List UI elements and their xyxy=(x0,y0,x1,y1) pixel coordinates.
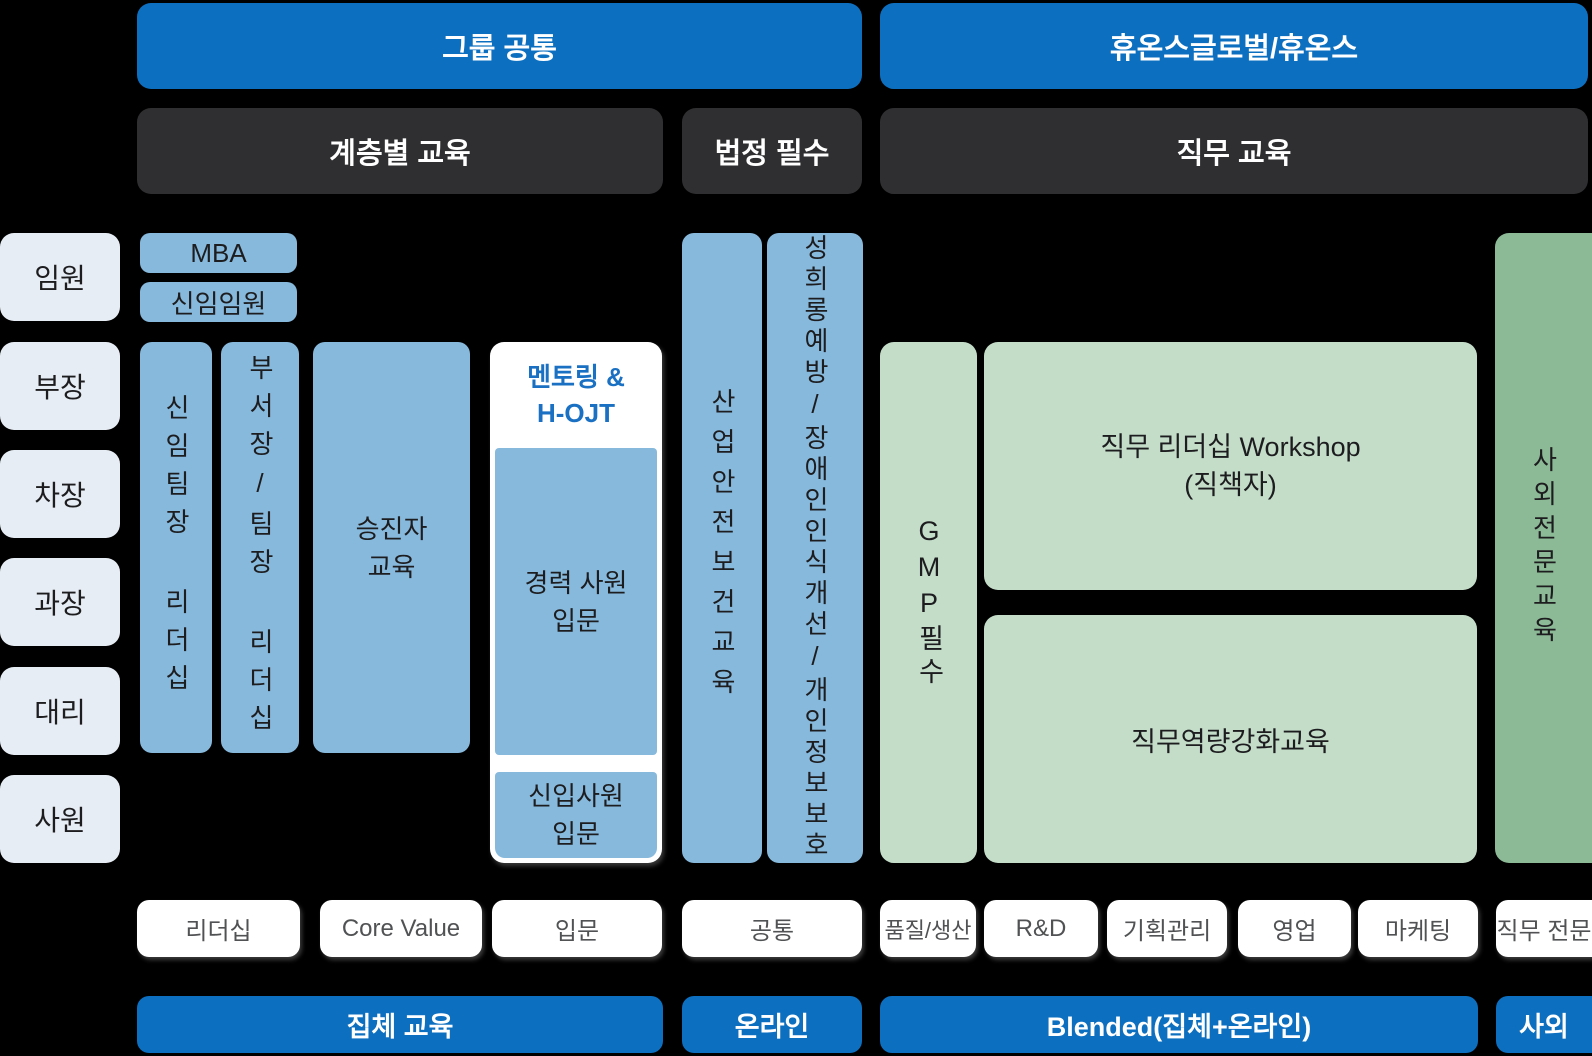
method-blended: Blended(집체+온라인) xyxy=(880,996,1478,1053)
program-job-leadership-workshop: 직무 리더십 Workshop (직책자) xyxy=(984,342,1477,590)
program-experienced-hire-intro: 경력 사원 입문 xyxy=(495,448,657,755)
method-external: 사외 xyxy=(1496,996,1592,1053)
vertical-label: 부서장/팀장 리더십 xyxy=(247,354,273,742)
category-planning-management: 기획관리 xyxy=(1107,900,1227,957)
promotee-line1: 승진자 xyxy=(356,510,428,548)
workshop-line2: (직책자) xyxy=(1100,466,1360,504)
mentoring-line2: H-OJT xyxy=(527,395,625,431)
program-dept-team-leader-leadership: 부서장/팀장 리더십 xyxy=(221,342,299,753)
header-legal-required: 법정 필수 xyxy=(682,108,862,194)
category-marketing: 마케팅 xyxy=(1358,900,1478,957)
program-new-employee-intro: 신입사원 입문 xyxy=(495,772,657,858)
program-mentoring-hojt: 멘토링 & H-OJT xyxy=(490,342,662,448)
experienced-line2: 입문 xyxy=(525,602,628,640)
category-leadership: 리더십 xyxy=(137,900,300,957)
vertical-label: 산업안전보건교육 xyxy=(709,388,735,708)
program-mba: MBA xyxy=(140,233,297,273)
rank-executive: 임원 xyxy=(0,233,120,321)
workshop-line1: 직무 리더십 Workshop xyxy=(1100,428,1360,466)
vertical-label: 성희롱예방/장애인인식개선/개인정보보호 xyxy=(802,234,828,862)
rank-staff: 사원 xyxy=(0,775,120,863)
header-huons-global: 휴온스글로벌/휴온스 xyxy=(880,3,1588,89)
program-onboarding-column: 멘토링 & H-OJT 경력 사원 입문 신입사원 입문 xyxy=(490,342,662,863)
category-intro: 입문 xyxy=(492,900,662,957)
experienced-line1: 경력 사원 xyxy=(525,564,628,602)
header-job-education: 직무 교육 xyxy=(880,108,1588,194)
program-industrial-safety: 산업안전보건교육 xyxy=(682,233,762,863)
vertical-label: GMP필수 xyxy=(915,516,942,690)
category-sales: 영업 xyxy=(1238,900,1351,957)
program-job-competency: 직무역량강화교육 xyxy=(984,615,1477,863)
rank-manager: 과장 xyxy=(0,558,120,646)
program-external-expert: 사외전문교육 xyxy=(1495,233,1592,863)
header-group-common: 그룹 공통 xyxy=(137,3,862,89)
newcomer-line1: 신입사원 xyxy=(528,777,624,815)
rank-general-manager: 부장 xyxy=(0,342,120,430)
vertical-label: 사외전문교육 xyxy=(1531,446,1557,650)
rank-assistant-manager: 대리 xyxy=(0,667,120,755)
education-system-diagram: 그룹 공통 휴온스글로벌/휴온스 계층별 교육 법정 필수 직무 교육 임원 부… xyxy=(0,0,1592,1056)
category-core-value: Core Value xyxy=(320,900,482,957)
program-harassment-prevention: 성희롱예방/장애인인식개선/개인정보보호 xyxy=(767,233,863,863)
program-promotee-education: 승진자 교육 xyxy=(313,342,470,753)
newcomer-line2: 입문 xyxy=(528,815,624,853)
program-gmp-required: GMP필수 xyxy=(880,342,977,863)
vertical-label: 신임팀장 리더십 xyxy=(163,394,189,702)
category-rnd: R&D xyxy=(984,900,1098,957)
promotee-line2: 교육 xyxy=(356,548,428,586)
header-tier-education: 계층별 교육 xyxy=(137,108,663,194)
category-common: 공통 xyxy=(682,900,862,957)
program-new-executive: 신임임원 xyxy=(140,282,297,322)
method-group-training: 집체 교육 xyxy=(137,996,663,1053)
rank-deputy-general-manager: 차장 xyxy=(0,450,120,538)
program-new-team-leader-leadership: 신임팀장 리더십 xyxy=(140,342,212,753)
mentoring-line1: 멘토링 & xyxy=(527,359,625,395)
category-job-expert: 직무 전문 xyxy=(1496,900,1592,957)
method-online: 온라인 xyxy=(682,996,862,1053)
category-quality-production: 품질/생산 xyxy=(880,900,976,957)
